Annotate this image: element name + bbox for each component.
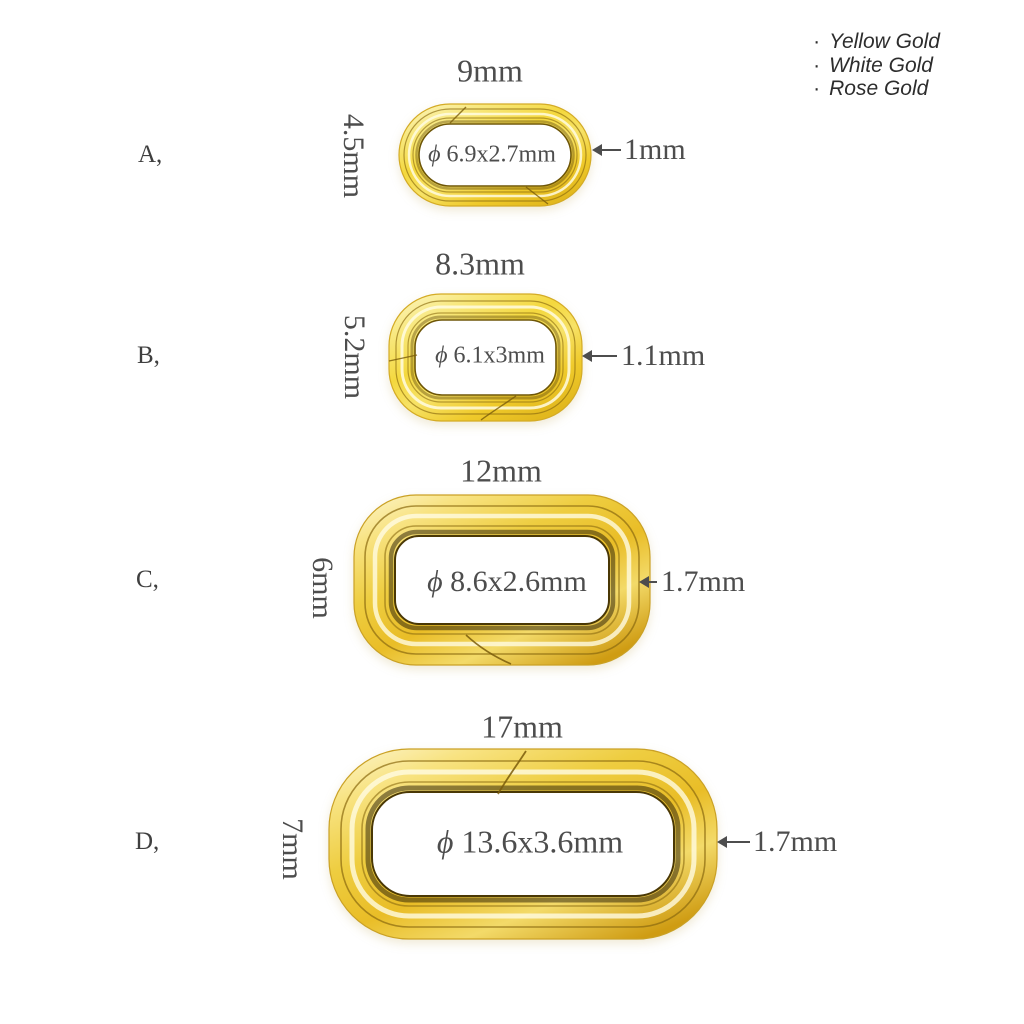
wire-label-b: 1.1mm [621, 339, 705, 373]
bullet-icon: · [813, 54, 820, 78]
inner-dimension-label-d: ϕ 13.6x3.6mm [437, 824, 623, 861]
legend-item-yellow-gold: · Yellow Gold [813, 30, 940, 54]
inner-dimension-label-c: ϕ 8.6x2.6mm [427, 565, 587, 599]
legend-item-rose-gold: · Rose Gold [813, 77, 940, 101]
legend-label: Rose Gold [829, 77, 928, 101]
height-label-b: 5.2mm [337, 315, 371, 399]
size-letter-b: B, [137, 342, 160, 370]
wire-label-a: 1mm [624, 133, 686, 167]
width-label-a: 9mm [457, 53, 523, 90]
legend-label: Yellow Gold [829, 30, 940, 54]
width-label-d: 17mm [481, 709, 563, 746]
bullet-icon: · [813, 30, 820, 54]
width-label-b: 8.3mm [435, 246, 525, 283]
height-label-d: 7mm [275, 818, 309, 880]
height-label-c: 6mm [305, 557, 339, 619]
size-letter-c: C, [136, 566, 159, 594]
arrow-left-icon [641, 581, 657, 583]
arrow-left-icon [594, 149, 621, 151]
arrow-left-icon [584, 355, 617, 357]
inner-dimension-label-a: ϕ 6.9x2.7mm [428, 142, 556, 169]
clasp-size-diagram: · Yellow Gold · White Gold · Rose Gold A… [0, 0, 1024, 1024]
legend-label: White Gold [829, 54, 933, 78]
size-letter-d: D, [135, 828, 159, 856]
legend-item-white-gold: · White Gold [813, 54, 940, 78]
metal-color-legend: · Yellow Gold · White Gold · Rose Gold [813, 30, 940, 101]
width-label-c: 12mm [460, 453, 542, 490]
size-letter-a: A, [138, 141, 162, 169]
height-label-a: 4.5mm [336, 114, 370, 198]
arrow-left-icon [719, 841, 750, 843]
wire-label-c: 1.7mm [661, 565, 745, 599]
inner-dimension-label-b: ϕ 6.1x3mm [435, 343, 545, 370]
wire-label-d: 1.7mm [753, 825, 837, 859]
bullet-icon: · [813, 77, 820, 101]
